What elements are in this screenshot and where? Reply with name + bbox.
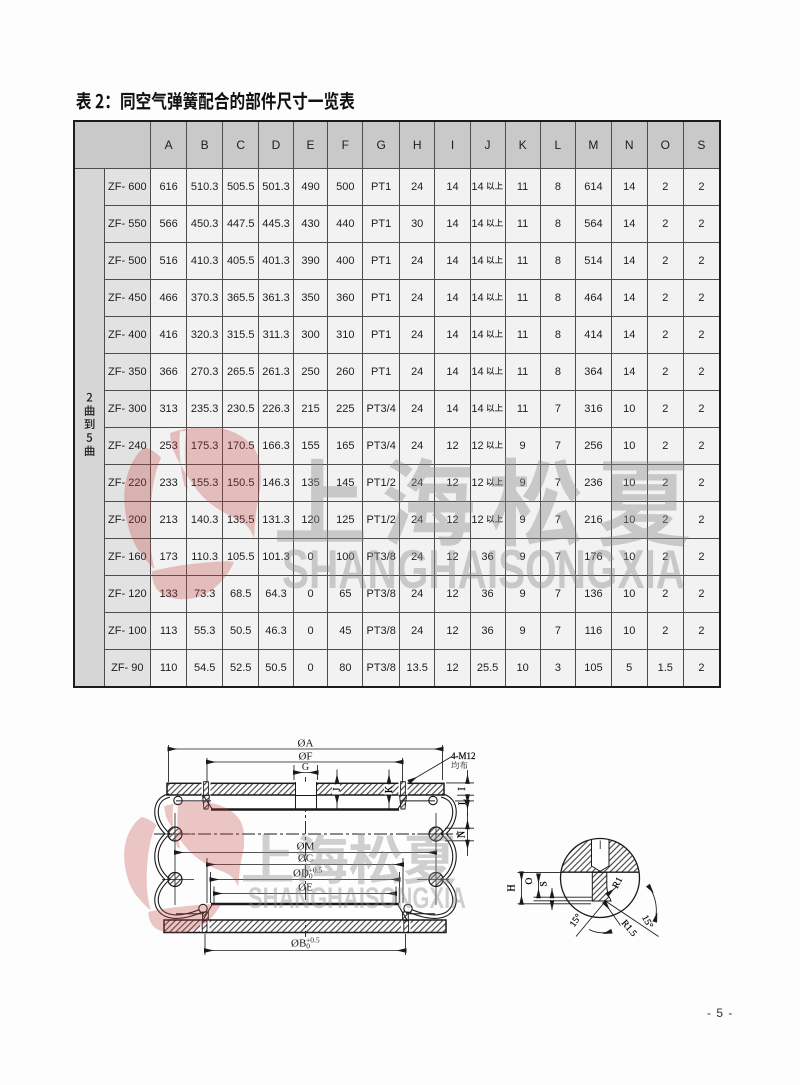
svg-text:SHANGHAISONGXIA: SHANGHAISONGXIA: [248, 882, 466, 915]
svg-text:R1.5: R1.5: [619, 919, 639, 940]
svg-text:O: O: [525, 877, 535, 884]
svg-text:I: I: [457, 787, 468, 790]
svg-text:K: K: [384, 785, 395, 793]
svg-text:15°: 15°: [639, 913, 655, 930]
svg-text:4-M12: 4-M12: [451, 751, 476, 761]
svg-text:ØF: ØF: [298, 751, 312, 763]
svg-text:15°: 15°: [568, 912, 585, 929]
svg-text:ØB0+0.5: ØB0+0.5: [291, 935, 320, 950]
svg-text:J: J: [332, 787, 343, 791]
svg-text:ØA: ØA: [298, 738, 314, 750]
svg-text:G: G: [302, 762, 309, 773]
svg-text:H: H: [507, 884, 518, 891]
svg-text:S: S: [540, 881, 550, 886]
svg-text:SHANGHAISONGXIA: SHANGHAISONGXIA: [282, 538, 685, 595]
svg-text:R1: R1: [611, 876, 625, 891]
svg-text:L: L: [458, 799, 469, 805]
